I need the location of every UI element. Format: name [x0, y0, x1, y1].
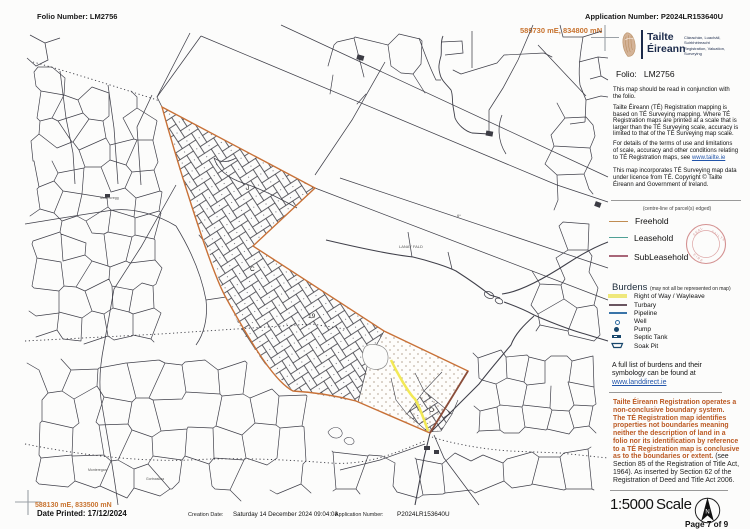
svg-text:LANAY FALD: LANAY FALD — [399, 244, 423, 249]
svg-text:O: O — [429, 407, 434, 414]
svg-text:6*: 6* — [457, 213, 461, 218]
svg-text:Monteregan: Monteregan — [88, 468, 107, 472]
svg-text:N: N — [705, 510, 709, 516]
svg-text:Mohercregg: Mohercregg — [100, 196, 119, 200]
svg-text:J: J — [246, 185, 249, 192]
svg-text:19: 19 — [308, 313, 316, 320]
svg-text:C: C — [250, 266, 255, 273]
svg-text:Gortnaskea: Gortnaskea — [146, 477, 164, 481]
